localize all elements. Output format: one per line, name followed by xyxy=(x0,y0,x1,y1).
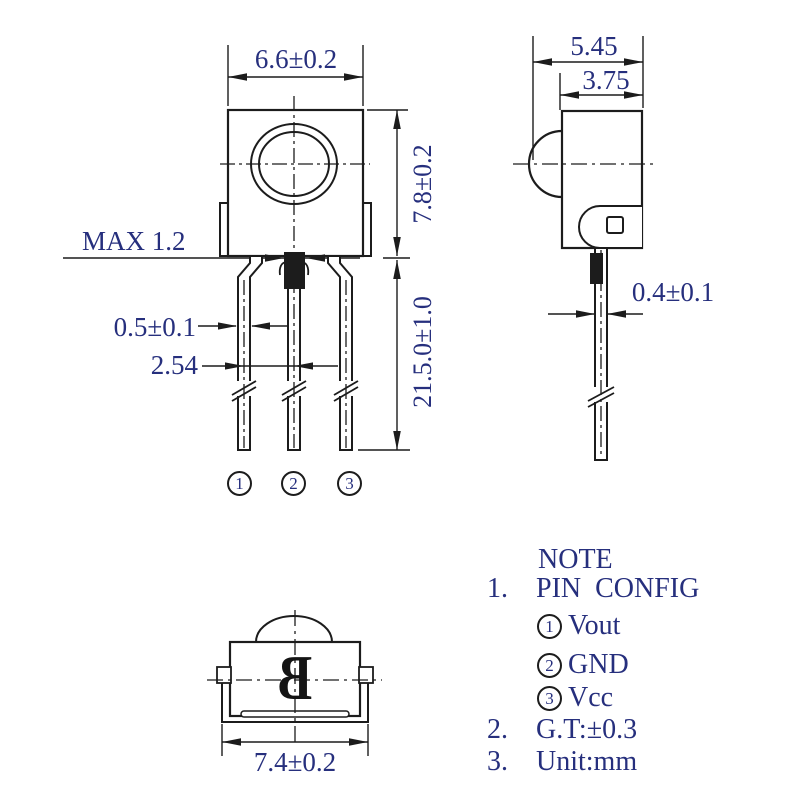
note-item2-text: G.T:±0.3 xyxy=(536,715,637,745)
side-kink-blob xyxy=(590,253,603,284)
note-pin2-badge: 2 xyxy=(537,653,562,678)
pin2-number: 2 xyxy=(289,474,298,494)
front-view xyxy=(220,110,371,256)
pin3-lead xyxy=(328,256,352,450)
datasheet-drawing: 6.6±0.2 7.8±0.2 MAX 1.2 0.5±0.1 2.54 21.… xyxy=(0,0,800,800)
note-pin3-num: 3 xyxy=(545,689,554,709)
lead-thickness-dim: 0.4±0.1 xyxy=(625,278,721,306)
note-title: NOTE xyxy=(538,545,613,575)
pin2-number-badge: 2 xyxy=(281,471,306,496)
note-pin3-signal: Vcc xyxy=(568,683,613,713)
note-pin1-signal: Vout xyxy=(568,611,620,641)
note-item1-text: PIN CONFIG xyxy=(536,574,699,604)
note-pin1-num: 1 xyxy=(545,617,554,637)
bottom-lens-dome xyxy=(256,616,332,642)
note-item2-index: 2. xyxy=(487,715,508,745)
note-pin1-badge: 1 xyxy=(537,614,562,639)
side-total-depth-dim: 5.45 xyxy=(542,32,646,60)
front-left-tab xyxy=(220,203,228,256)
side-mount-hole xyxy=(607,217,623,233)
pin3-number-badge: 3 xyxy=(337,471,362,496)
front-kink-blob xyxy=(284,252,305,289)
device-marking: B xyxy=(269,644,320,712)
note-pin2-num: 2 xyxy=(545,656,554,676)
note-item3-text: Unit:mm xyxy=(536,747,637,777)
note-pin3-badge: 3 xyxy=(537,686,562,711)
lead-pitch-dim: 2.54 xyxy=(118,351,198,379)
base-width-dim: 7.4±0.2 xyxy=(235,748,355,776)
pin1-lead xyxy=(238,256,262,450)
pin1-number-badge: 1 xyxy=(227,471,252,496)
side-body-depth-dim: 3.75 xyxy=(554,66,658,94)
front-right-tab xyxy=(363,203,371,256)
front-width-dim: 6.6±0.2 xyxy=(234,45,358,73)
pin1-number: 1 xyxy=(235,474,244,494)
drawing-linework xyxy=(0,0,800,800)
lead-width-dim: 0.5±0.1 xyxy=(88,313,196,341)
pin3-number: 3 xyxy=(345,474,354,494)
standoff-dim: MAX 1.2 xyxy=(82,227,186,255)
lead-length-dim: 21.5.0±1.0 xyxy=(406,267,440,437)
front-height-dim: 7.8±0.2 xyxy=(406,109,440,259)
note-item3-index: 3. xyxy=(487,747,508,777)
note-pin2-signal: GND xyxy=(568,650,629,680)
note-item1-index: 1. xyxy=(487,574,508,604)
